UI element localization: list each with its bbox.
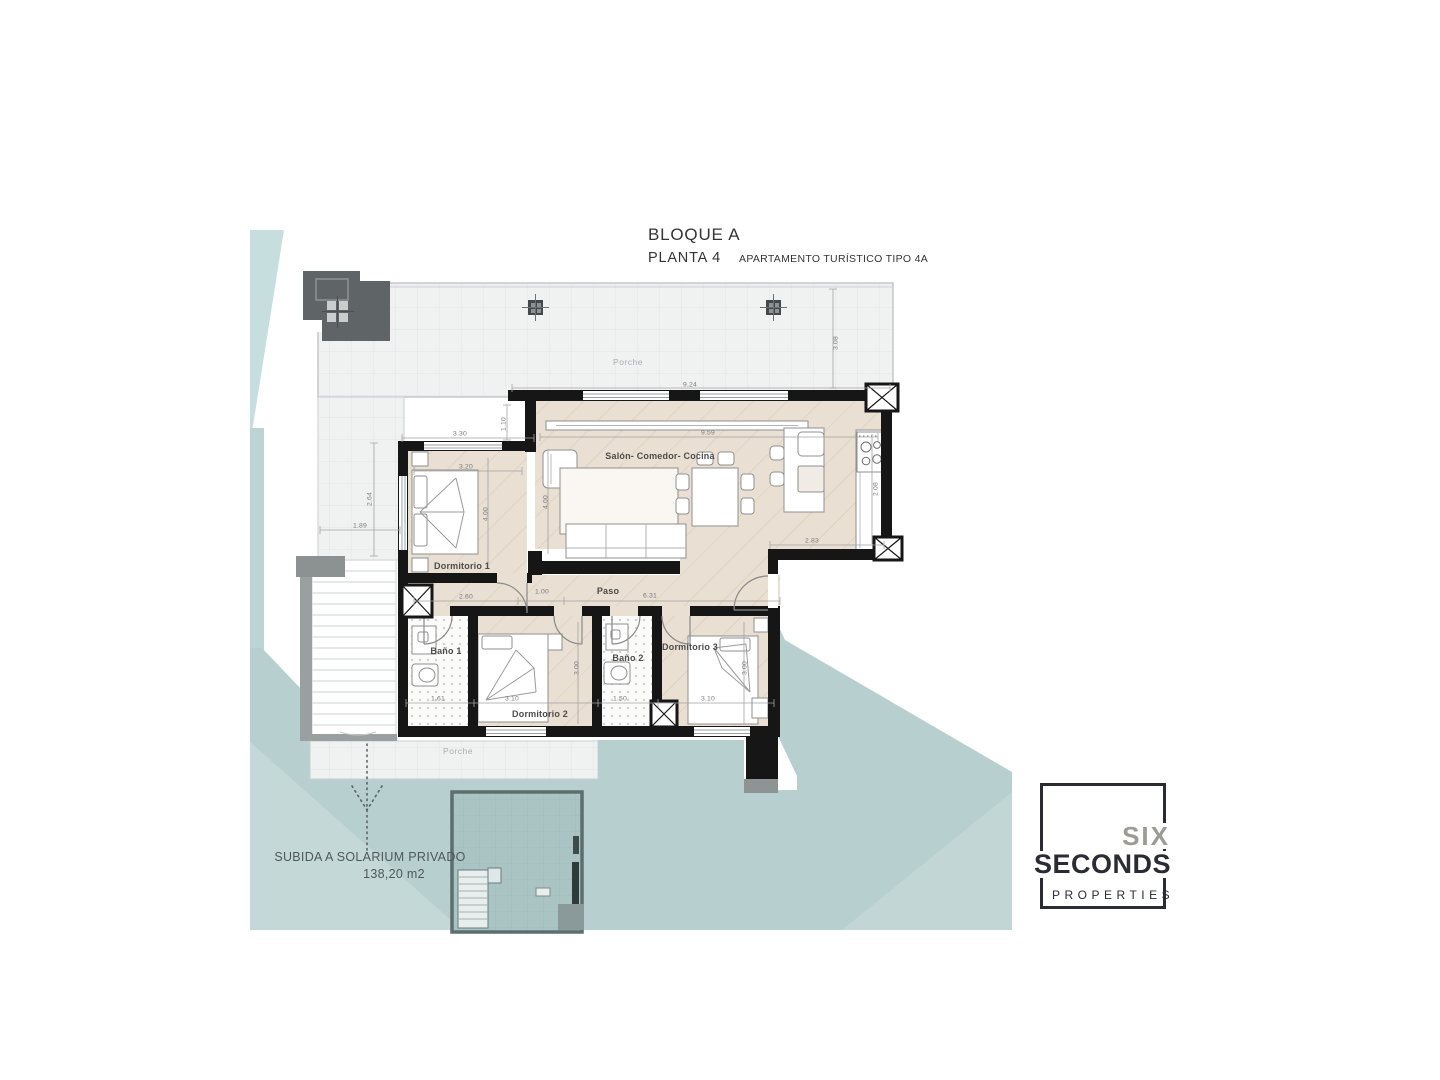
room-label-bedroom2: Dormitorio 2 xyxy=(512,709,568,719)
dimension-label: 3.00 xyxy=(574,661,581,675)
room-label-hall: Paso xyxy=(597,586,619,596)
solarium-annotation-line1: SUBIDA A SOLARIUM PRIVADO xyxy=(274,850,465,864)
logo-text-six: SIX xyxy=(1120,823,1172,849)
sofa xyxy=(566,524,686,558)
porch-label-top: Porche xyxy=(613,357,643,367)
solarium-annotation-area: 138,20 m2 xyxy=(322,867,465,881)
room-label-bedroom1: Dormitorio 1 xyxy=(434,561,490,571)
chair xyxy=(718,452,734,465)
living-floor-ext xyxy=(680,549,768,577)
nightstand xyxy=(412,452,428,466)
chair xyxy=(676,498,689,514)
solarium-block xyxy=(558,904,584,930)
dimension-label: 2.08 xyxy=(873,482,880,496)
floorplan-drawing xyxy=(0,0,1440,1080)
stair-side-wall xyxy=(300,560,312,738)
shaft-icon xyxy=(874,537,902,560)
stair-top-wall xyxy=(296,556,345,577)
dimension-label: 3.10 xyxy=(505,696,519,703)
project-title: BLOQUE A xyxy=(648,225,928,245)
stool xyxy=(770,446,784,460)
dimension-label: 9.59 xyxy=(701,430,715,437)
dimension-label: 1.61 xyxy=(431,696,445,703)
dimension-label: 4.00 xyxy=(543,495,550,509)
porch-top-area xyxy=(318,283,893,397)
chair xyxy=(741,474,754,490)
toilet xyxy=(604,662,630,684)
shaft-icon xyxy=(651,701,677,727)
unit-type-title: APARTAMENTO TURÍSTICO TIPO 4A xyxy=(739,253,928,265)
dimension-label: 2.60 xyxy=(459,594,473,601)
hall-floor-east xyxy=(532,575,780,608)
island-board xyxy=(798,466,824,492)
stool xyxy=(770,472,784,486)
solarium-wall-mark xyxy=(572,862,579,904)
stair-bottom-wall xyxy=(300,734,397,741)
solarium-wall-mark xyxy=(573,836,579,854)
dimension-label: 1.00 xyxy=(535,589,549,596)
dimension-label: 3.10 xyxy=(701,696,715,703)
terrace-stair xyxy=(312,560,396,735)
floor-title: PLANTA 4 xyxy=(648,250,721,266)
nightstand xyxy=(548,634,562,650)
wardrobe xyxy=(754,618,768,632)
title-block: BLOQUE A PLANTA 4 APARTAMENTO TURÍSTICO … xyxy=(648,225,928,266)
dimension-label: 2.83 xyxy=(805,538,819,545)
dimension-label: 4.00 xyxy=(483,507,490,521)
nightstand xyxy=(752,698,768,718)
dimension-label: 1.10 xyxy=(501,417,508,431)
dining-table xyxy=(692,468,738,526)
dimension-label: 3.08 xyxy=(833,336,840,350)
porch-label-bottom: Porche xyxy=(443,746,473,756)
dimension-label: 3.20 xyxy=(459,464,473,471)
solarium-annotation: SUBIDA A SOLARIUM PRIVADO 138,20 m2 xyxy=(274,850,465,881)
dimension-label: 6.31 xyxy=(643,593,657,600)
logo-text-seconds: SECONDS xyxy=(1032,851,1173,878)
nightstand xyxy=(412,558,428,572)
room-label-bedroom3: Dormitorio 3 xyxy=(662,642,718,652)
floorplan-page: BLOQUE A PLANTA 4 APARTAMENTO TURÍSTICO … xyxy=(0,0,1440,1080)
toilet xyxy=(412,664,438,686)
dimension-label: 9.24 xyxy=(683,382,697,389)
room-label-bath2: Baño 2 xyxy=(612,653,643,663)
teal-top-wedge xyxy=(250,230,284,432)
room-label-living: Salón- Comedor- Cocina xyxy=(605,451,714,461)
room-label-bath1: Baño 1 xyxy=(430,646,461,656)
dimension-label: 3.30 xyxy=(453,431,467,438)
porch-left-area xyxy=(318,397,404,560)
dimension-label: 1.89 xyxy=(353,523,367,530)
dimension-label: 2.64 xyxy=(367,492,374,506)
company-logo: SIX SECONDS PROPERTIES xyxy=(1040,783,1166,909)
stair-core-block xyxy=(303,271,390,341)
solarium-inset-plan xyxy=(452,792,584,932)
island-sink xyxy=(798,432,824,456)
dimension-label: 1.50 xyxy=(613,696,627,703)
dimension-label: 3.00 xyxy=(742,661,749,675)
logo-text-properties: PROPERTIES xyxy=(1052,889,1174,901)
chair xyxy=(676,474,689,490)
chair xyxy=(741,498,754,514)
